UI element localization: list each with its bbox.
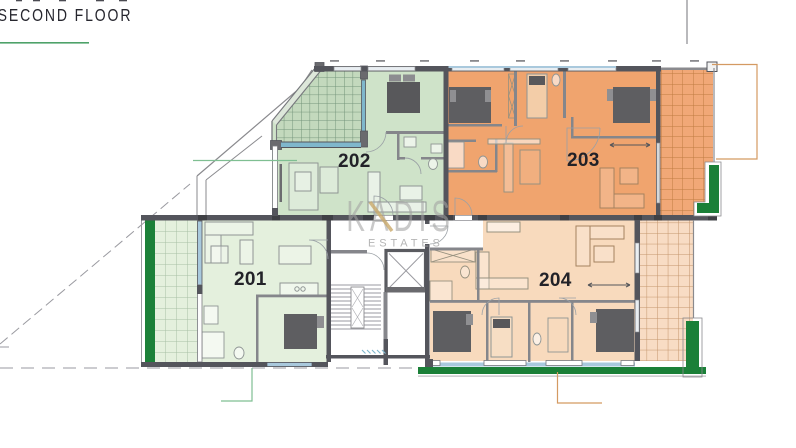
svg-text:ESTATES: ESTATES [368, 238, 444, 250]
svg-text:SECOND FLOOR: SECOND FLOOR [0, 5, 132, 25]
svg-text:203: 203 [567, 150, 600, 171]
svg-text:204: 204 [539, 270, 572, 291]
svg-text:202: 202 [338, 151, 371, 172]
svg-text:201: 201 [234, 269, 267, 290]
svg-text:KADIS: KADIS [346, 192, 455, 241]
